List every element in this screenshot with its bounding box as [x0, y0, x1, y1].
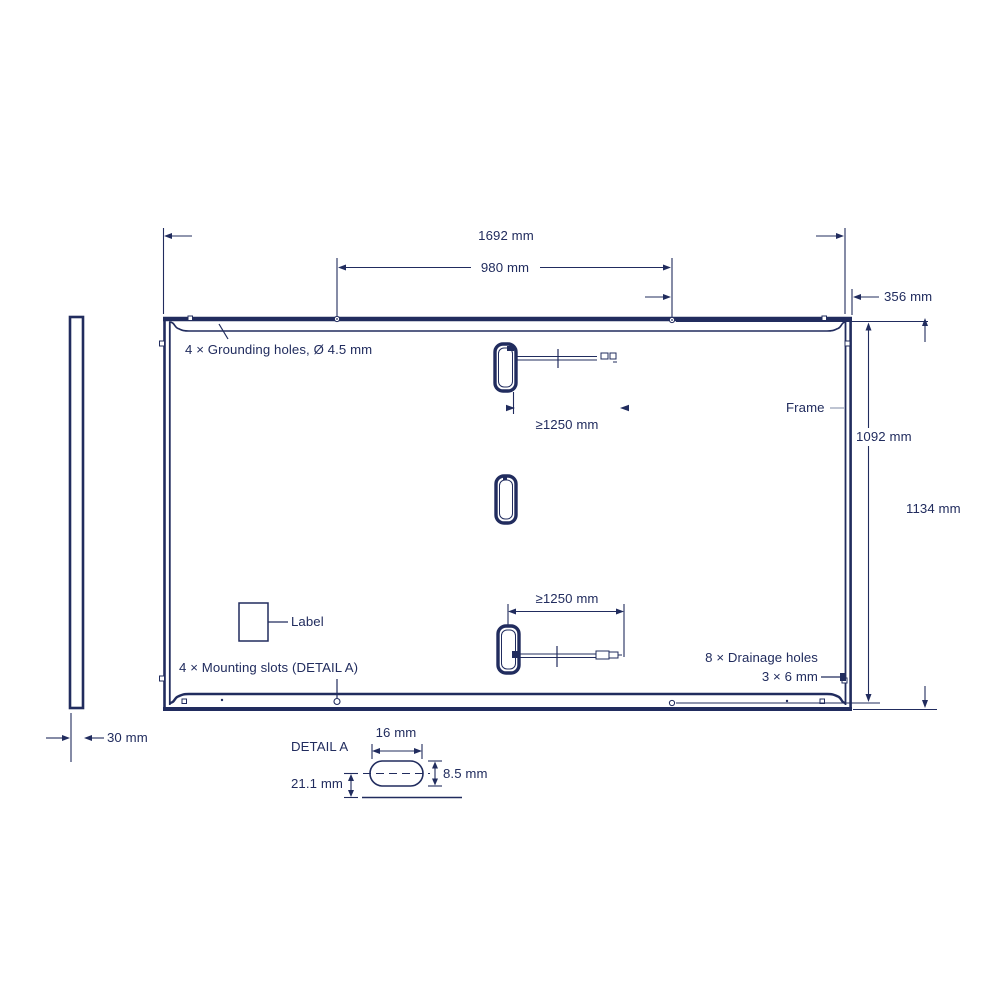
mounting-hole-bottom-right [669, 700, 674, 705]
inner-height-dim-text: 1092 mm [856, 429, 912, 444]
mounting-slot-top-tab [507, 346, 514, 351]
detail-height-dim-text: 8.5 mm [443, 766, 488, 781]
mounting-slots-label: 4 × Mounting slots (DETAIL A) [179, 660, 358, 675]
dimension-overall-height: 1134 mm [853, 318, 961, 710]
arrow-down-icon [348, 790, 354, 797]
grounding-hole-top-right-center [671, 319, 673, 321]
mounting-slot-middle-inner [500, 480, 513, 519]
dimension-clamp-bottom: ≥1250 mm [508, 591, 624, 657]
dimension-edge-to-slot: 356 mm [645, 289, 932, 315]
mounting-slot-middle-tab [503, 477, 507, 480]
detail-offset-dim-text: 21.1 mm [291, 776, 343, 791]
arrow-right-icon [663, 294, 671, 300]
arrow-up-icon [348, 774, 354, 781]
detail-width-dim-text: 16 mm [376, 725, 417, 740]
label-box [239, 603, 268, 641]
grounding-holes-label: 4 × Grounding holes, Ø 4.5 mm [185, 342, 372, 357]
arrow-up-icon [432, 762, 438, 769]
arrow-up-icon [866, 323, 872, 331]
detail-a-view: DETAIL A 16 mm 8.5 mm 21.1 mm [291, 725, 488, 798]
left-frame-hole-lower [160, 676, 165, 681]
frame-top-lip-line [169, 322, 846, 331]
callout-label: Label [239, 603, 324, 641]
clamp-bottom-dim-text: ≥1250 mm [535, 591, 598, 606]
dimension-inner-height: 1092 mm [676, 322, 928, 704]
edge-to-slot-dim-text: 356 mm [884, 289, 932, 304]
callout-mounting-slots: 4 × Mounting slots (DETAIL A) [179, 660, 358, 705]
slot-spacing-dim-text: 980 mm [481, 260, 529, 275]
mounting-slot-hole-mark [334, 699, 340, 705]
arrow-down-icon [432, 779, 438, 786]
drainage-hole-mark [840, 673, 846, 681]
dimension-slot-spacing: 980 mm [337, 258, 672, 317]
callout-frame: Frame [786, 400, 844, 415]
top-frame-hole-square-left [188, 316, 193, 321]
bottom-frame-dot-left [221, 699, 223, 701]
connector-bottom-body [596, 651, 609, 659]
bottom-frame-dot-right [786, 700, 788, 702]
frame-bottom-lip-line [169, 694, 846, 703]
arrow-left-icon [853, 294, 861, 300]
arrow-right-icon [663, 265, 671, 271]
arrow-right-icon [836, 233, 844, 239]
overall-height-dim-text: 1134 mm [906, 501, 961, 516]
arrow-left-icon [84, 735, 92, 741]
right-frame-hole-upper [845, 341, 850, 346]
arrow-left-icon [508, 609, 516, 615]
top-frame-dot [787, 318, 789, 320]
drainage-holes-label-line1: 8 × Drainage holes [705, 650, 818, 665]
callout-grounding-holes: 4 × Grounding holes, Ø 4.5 mm [185, 324, 372, 357]
solar-panel-dimension-diagram: 30 mm [0, 0, 1000, 1000]
left-frame-hole-upper [160, 341, 165, 346]
thickness-dim-text: 30 mm [107, 730, 148, 745]
mounting-slot-bottom-tab [512, 651, 518, 658]
arrow-right-icon [62, 735, 70, 741]
detail-a-title: DETAIL A [291, 739, 348, 754]
arrow-down-icon [866, 694, 872, 702]
connector-bottom-clip [609, 652, 618, 658]
frame-label: Frame [786, 400, 825, 415]
drainage-holes-label-line2: 3 × 6 mm [762, 669, 818, 684]
panel-side-profile [70, 317, 83, 708]
top-frame-hole-square-right [822, 316, 827, 321]
bottom-frame-hole-square-left [182, 699, 187, 704]
dimension-clamp-top: ≥1250 mm [506, 392, 629, 432]
connector-top-body [601, 353, 608, 359]
arrow-left-icon [338, 265, 346, 271]
arrow-left-icon [372, 748, 380, 754]
arrow-down-icon [922, 700, 928, 708]
arrow-left-icon [164, 233, 172, 239]
arrow-right-icon [414, 748, 422, 754]
connector-top-clip [610, 353, 616, 359]
clamp-top-dim-text: ≥1250 mm [535, 417, 598, 432]
overall-width-dim-text: 1692 mm [478, 228, 534, 243]
grounding-hole-top-left-center [336, 318, 338, 320]
callout-drainage-holes: 8 × Drainage holes 3 × 6 mm [705, 650, 846, 684]
mounting-slot-top-inner [499, 348, 513, 387]
side-profile-view: 30 mm [46, 317, 148, 762]
label-label: Label [291, 614, 324, 629]
technical-drawing-page: 30 mm [0, 0, 1000, 1000]
arrow-left-icon [620, 405, 629, 411]
mounting-slot-bottom-inner [502, 630, 516, 669]
arrow-right-icon [616, 609, 624, 615]
